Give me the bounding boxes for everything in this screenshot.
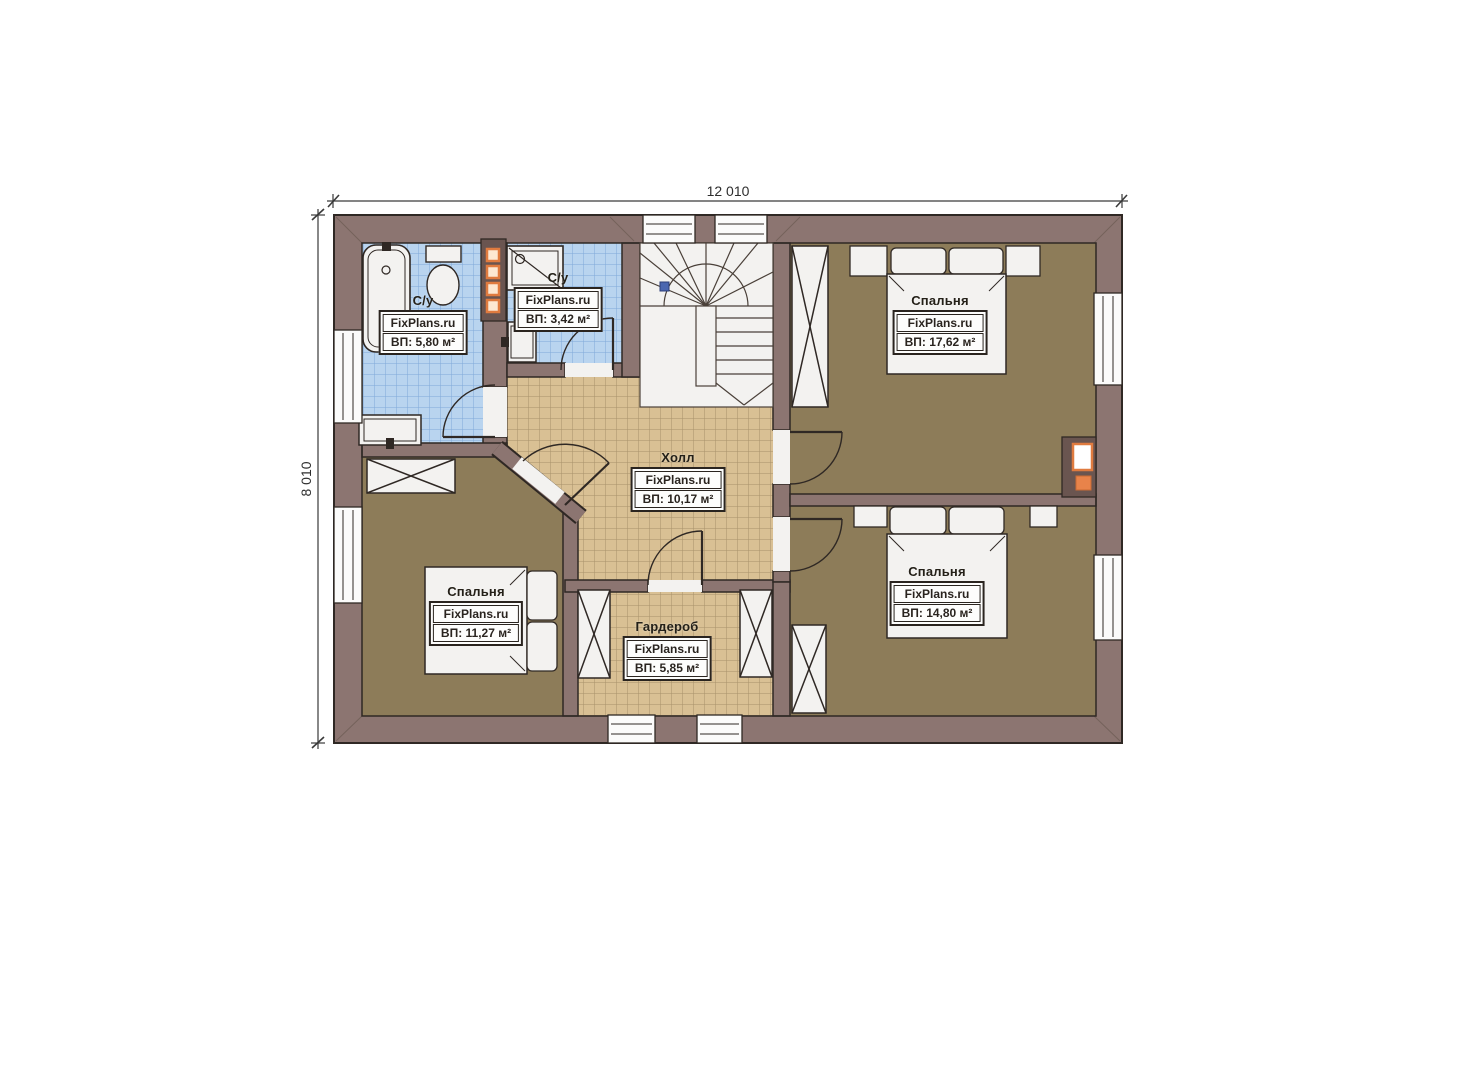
sink-icon [359,415,421,449]
room-label-box: FixPlans.ru ВП: 5,85 м² [623,636,712,681]
window [697,715,742,743]
watermark-brand: FixPlans.ru [894,585,981,603]
room-label-box: FixPlans.ru ВП: 14,80 м² [890,581,985,626]
watermark-brand: FixPlans.ru [627,640,708,658]
watermark-brand: FixPlans.ru [518,291,599,309]
room-title: С/у [379,293,468,308]
watermark-brand: FixPlans.ru [897,314,984,332]
room-title: Спальня [890,564,985,579]
wall [563,505,578,716]
nightstand [1006,246,1040,276]
room-title: Спальня [429,584,523,599]
watermark-brand: FixPlans.ru [635,471,722,489]
pillow [527,571,557,620]
nightstand [1030,506,1057,527]
room-label-bedroom-bottom-left: Спальня FixPlans.ru ВП: 11,27 м² [429,584,523,646]
nightstand [854,506,887,527]
room-label-wardrobe: Гардероб FixPlans.ru ВП: 5,85 м² [623,619,712,681]
room-label-box: FixPlans.ru ВП: 3,42 м² [514,287,603,332]
stair-newel [696,306,716,386]
room-label-box: FixPlans.ru ВП: 10,17 м² [631,467,726,512]
dimension-width-label: 12 010 [707,183,750,199]
watermark-brand: FixPlans.ru [383,314,464,332]
pillow [890,507,946,534]
closet [578,590,610,678]
wall [773,484,790,517]
floor-plan-canvas [0,0,1473,1080]
room-label-box: FixPlans.ru ВП: 17,62 м² [893,310,988,355]
window [643,215,695,243]
floor-plan-page: 12 010 8 010 С/у FixPlans.ru ВП: 5,80 м²… [0,0,1473,1080]
room-area: ВП: 14,80 м² [894,604,981,622]
wall [790,494,1096,506]
wall [773,571,790,582]
room-area: ВП: 5,80 м² [383,333,464,351]
window [334,330,362,423]
wall [507,363,565,377]
room-area: ВП: 5,85 м² [627,659,708,677]
pillow [949,507,1004,534]
room-label-bedroom-bottom-right: Спальня FixPlans.ru ВП: 14,80 м² [890,564,985,626]
window [608,715,655,743]
staircase [640,243,773,407]
closet [792,625,826,713]
closet [367,459,455,493]
pillow [527,622,557,671]
room-label-bedroom-top-right: Спальня FixPlans.ru ВП: 17,62 м² [893,293,988,355]
room-title: Холл [631,450,726,465]
window [1094,293,1122,385]
room-area: ВП: 3,42 м² [518,310,599,328]
room-area: ВП: 11,27 м² [433,624,519,642]
room-title: С/у [514,270,603,285]
room-label-box: FixPlans.ru ВП: 11,27 м² [429,601,523,646]
room-label-bathroom-left: С/у FixPlans.ru ВП: 5,80 м² [379,293,468,355]
flue-icon [1076,476,1091,490]
closet [740,590,772,677]
pillow [891,248,946,274]
room-area: ВП: 17,62 м² [897,333,984,351]
pillow [949,248,1003,274]
dimension-height-label: 8 010 [298,461,314,496]
room-label-bathroom-middle: С/у FixPlans.ru ВП: 3,42 м² [514,270,603,332]
flue-icon [1073,444,1092,470]
room-label-box: FixPlans.ru ВП: 5,80 м² [379,310,468,355]
window [715,215,767,243]
watermark-brand: FixPlans.ru [433,605,519,623]
nightstand [850,246,887,276]
closet [792,246,828,407]
room-area: ВП: 10,17 м² [635,490,722,508]
window [1094,555,1122,640]
window [334,507,362,603]
room-label-hall: Холл FixPlans.ru ВП: 10,17 м² [631,450,726,512]
wall [773,243,790,430]
wall [773,582,790,716]
stair-marker [660,282,669,291]
wall [622,243,640,377]
room-title: Гардероб [623,619,712,634]
room-title: Спальня [893,293,988,308]
